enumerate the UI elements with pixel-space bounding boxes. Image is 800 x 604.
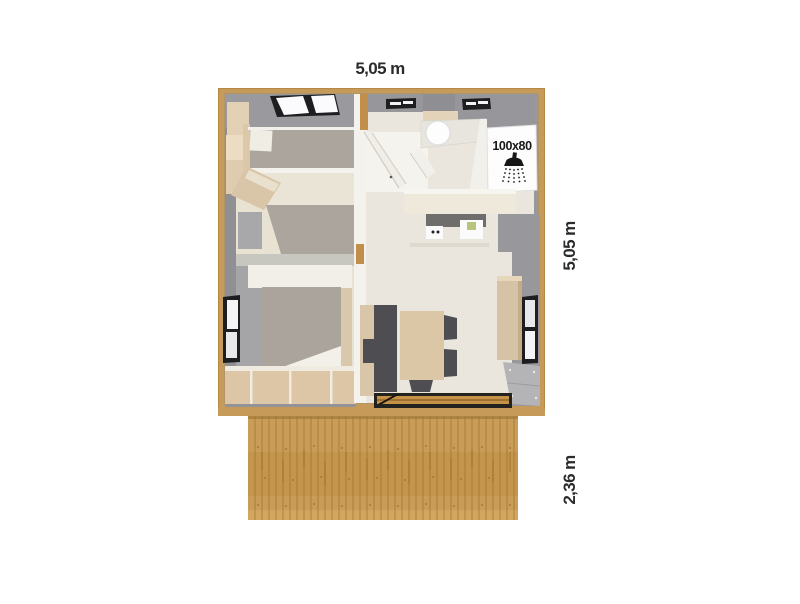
svg-text:5,05 m: 5,05 m xyxy=(560,221,579,271)
svg-text:100x80: 100x80 xyxy=(492,139,532,153)
svg-text:5,05 m: 5,05 m xyxy=(355,59,405,78)
svg-text:2,36 m: 2,36 m xyxy=(560,455,579,505)
